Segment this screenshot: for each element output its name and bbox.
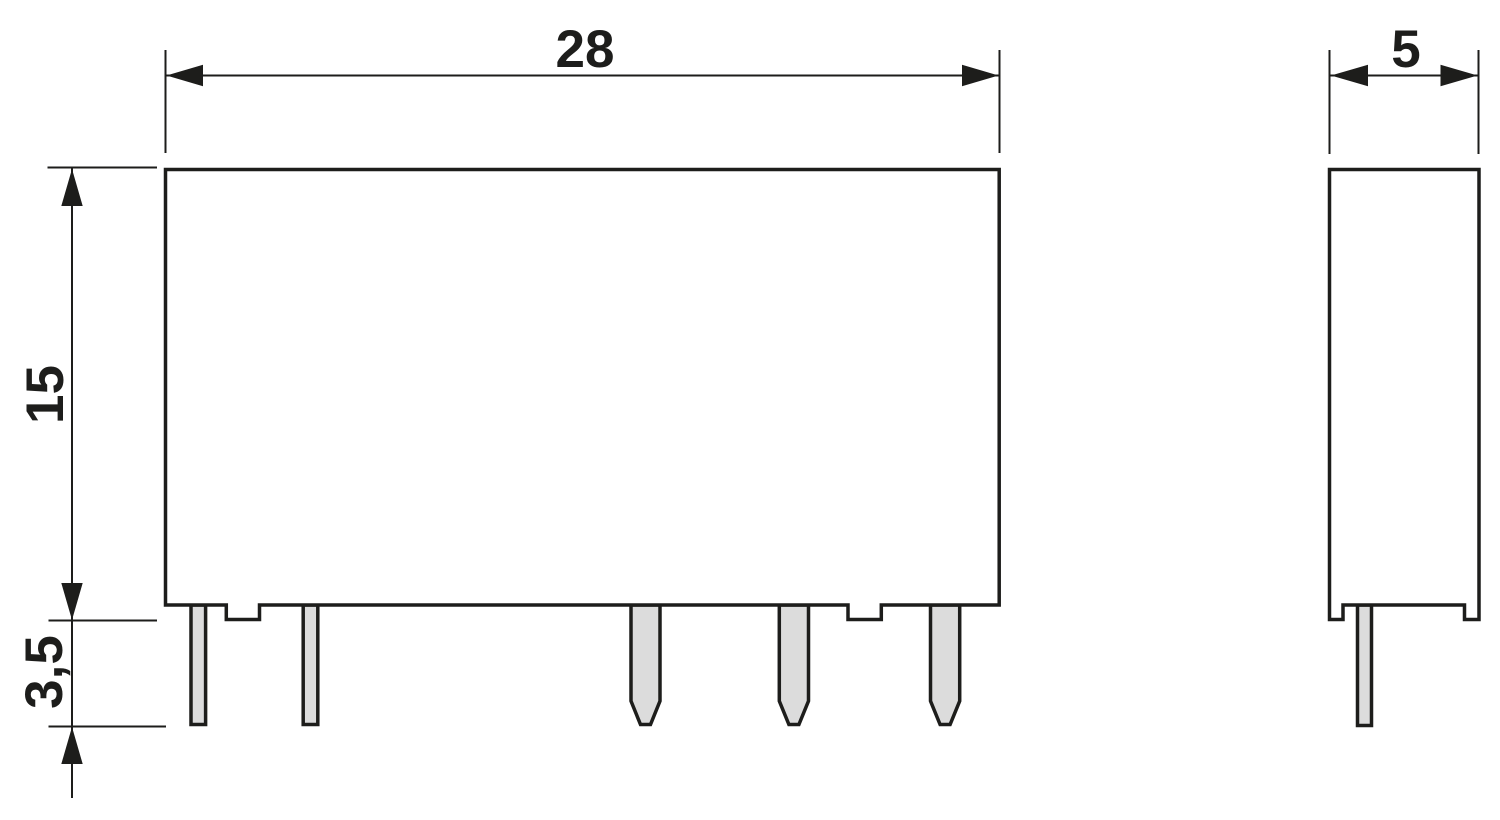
svg-text:3,5: 3,5 [15, 635, 74, 709]
svg-text:5: 5 [1391, 20, 1420, 79]
svg-text:28: 28 [556, 20, 615, 79]
svg-text:15: 15 [16, 365, 75, 424]
